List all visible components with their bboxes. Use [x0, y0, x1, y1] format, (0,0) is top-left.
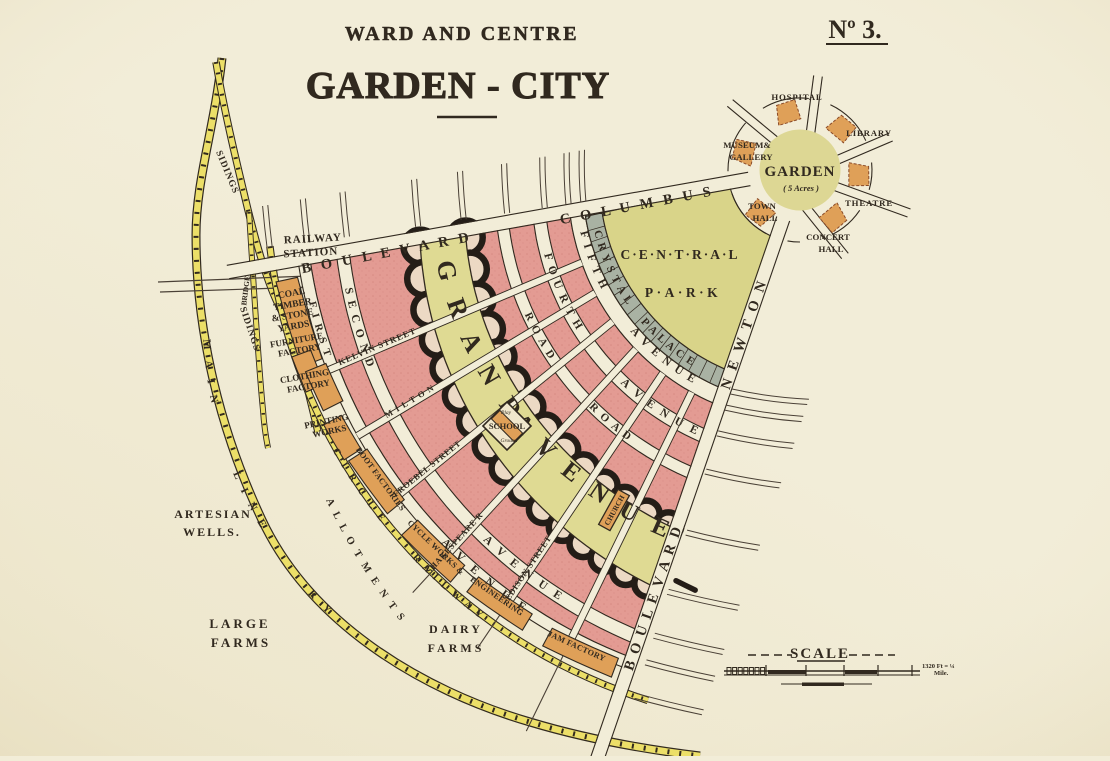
svg-text:Mile.: Mile. [934, 670, 949, 677]
svg-text:Nº 3.: Nº 3. [828, 15, 881, 44]
svg-text:FARMS: FARMS [211, 635, 271, 650]
svg-text:HOSPITAL: HOSPITAL [771, 92, 822, 102]
svg-text:TOWN: TOWN [748, 201, 776, 211]
svg-text:( 5 Acres ): ( 5 Acres ) [783, 183, 819, 193]
svg-text:1320 Ft = ¼: 1320 Ft = ¼ [922, 663, 955, 670]
svg-text:HALL: HALL [753, 213, 778, 223]
svg-text:ARTESIAN: ARTESIAN [174, 507, 252, 521]
svg-text:LIBRARY: LIBRARY [846, 128, 892, 138]
svg-text:CONCERT: CONCERT [806, 232, 850, 242]
svg-text:MUSEUM&: MUSEUM& [723, 140, 770, 150]
svg-text:GARDEN - CITY: GARDEN - CITY [306, 65, 610, 107]
svg-text:GARDEN: GARDEN [764, 164, 835, 180]
svg-text:Play: Play [500, 410, 512, 416]
svg-text:FARMS: FARMS [428, 641, 485, 655]
svg-text:GALLERY: GALLERY [729, 152, 773, 162]
svg-text:C·E·N·T·R·A·L: C·E·N·T·R·A·L [620, 247, 739, 262]
svg-text:SCALE: SCALE [790, 646, 850, 662]
svg-text:SCHOOL: SCHOOL [489, 421, 526, 431]
svg-text:WELLS.: WELLS. [183, 525, 241, 539]
svg-text:WARD AND CENTRE: WARD AND CENTRE [345, 23, 579, 45]
svg-text:LARGE: LARGE [209, 616, 270, 631]
svg-text:P·A·R·K: P·A·R·K [645, 285, 721, 300]
svg-text:Ground: Ground [501, 438, 518, 444]
svg-text:HALL: HALL [819, 244, 844, 254]
svg-text:THEATRE: THEATRE [845, 198, 893, 208]
svg-text:DAIRY: DAIRY [429, 622, 483, 636]
